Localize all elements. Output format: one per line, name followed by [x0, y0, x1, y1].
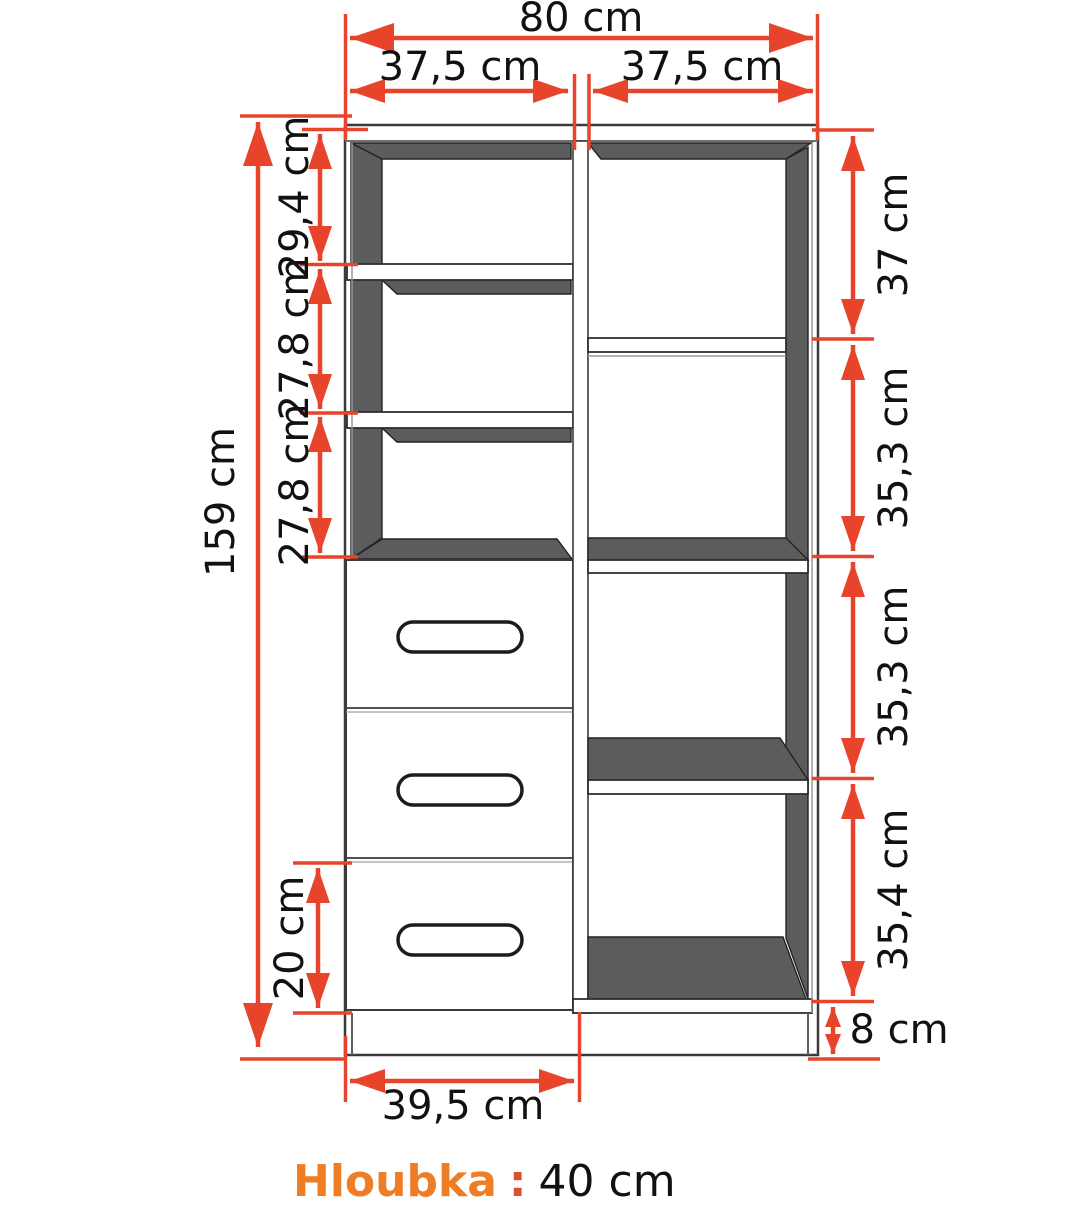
center-divider: [573, 141, 588, 1013]
depth-caption: Hloubka : 40 cm: [293, 1160, 676, 1204]
depth-value: 40 cm: [539, 1160, 676, 1204]
cabinet-structure: [345, 125, 818, 1055]
label-drawer-width: 39,5 cm: [382, 1086, 545, 1126]
label-drawer-height: 20 cm: [270, 876, 310, 1001]
label-right-1: 37 cm: [874, 173, 914, 298]
drawer-stack: [346, 560, 573, 1010]
label-right-4: 35,4 cm: [874, 809, 914, 972]
label-right-2: 35,3 cm: [874, 367, 914, 530]
label-left-2: 27,8 cm: [275, 258, 315, 421]
right-shelf-2: [588, 560, 808, 573]
label-left-1: 29,4 cm: [275, 116, 315, 279]
depth-separator: :: [509, 1160, 527, 1204]
left-shelf-2: [347, 412, 573, 428]
drawer-handle-icon: [398, 622, 522, 652]
left-shelf-1: [347, 264, 573, 280]
drawer-handle-icon: [398, 925, 522, 955]
label-total-height: 159 cm: [201, 427, 241, 577]
dimension-diagram: 80 cm 37,5 cm 37,5 cm 159 cm 29,4 cm 27,…: [0, 0, 1083, 1216]
drawer-handle-icon: [398, 775, 522, 805]
right-shelf-1: [588, 338, 786, 352]
label-left-3: 27,8 cm: [275, 404, 315, 567]
label-right-3: 35,3 cm: [874, 586, 914, 749]
right-shelf-3: [588, 780, 808, 794]
label-plinth-height: 8 cm: [849, 1010, 948, 1050]
label-total-width: 80 cm: [519, 0, 644, 38]
depth-label: Hloubka: [293, 1160, 497, 1204]
label-left-width: 37,5 cm: [379, 47, 542, 87]
right-bottom-panel: [573, 999, 812, 1013]
label-right-width: 37,5 cm: [621, 47, 784, 87]
